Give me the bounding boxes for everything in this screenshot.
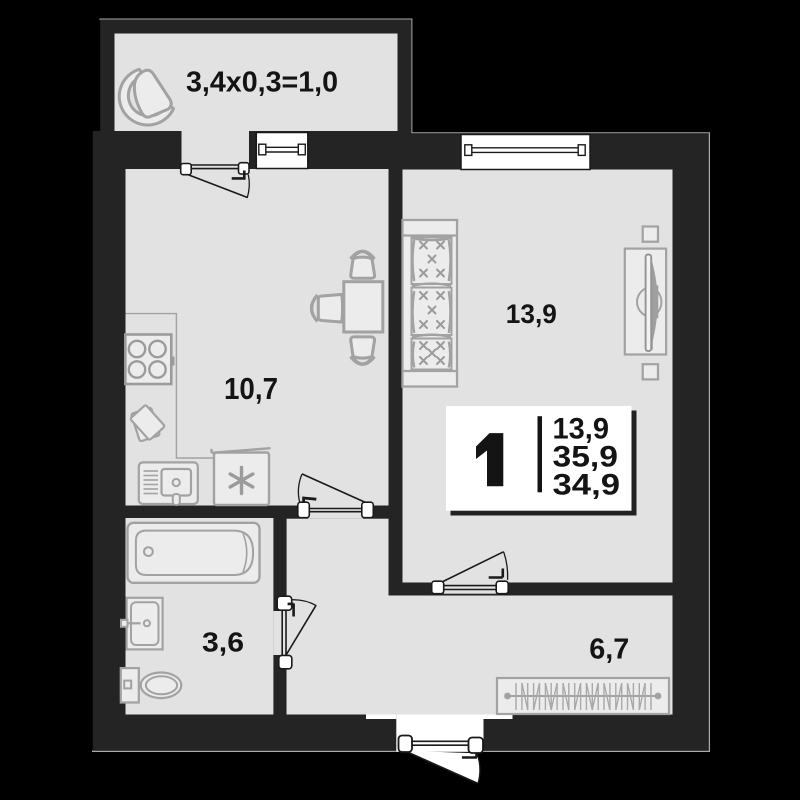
svg-text:10,7: 10,7 [224,371,278,406]
svg-text:13,9: 13,9 [506,299,557,329]
svg-text:34,9: 34,9 [553,468,621,501]
svg-text:3,6: 3,6 [202,627,244,658]
svg-text:3,4х0,3=1,0: 3,4х0,3=1,0 [186,67,338,99]
svg-text:6,7: 6,7 [589,634,629,666]
